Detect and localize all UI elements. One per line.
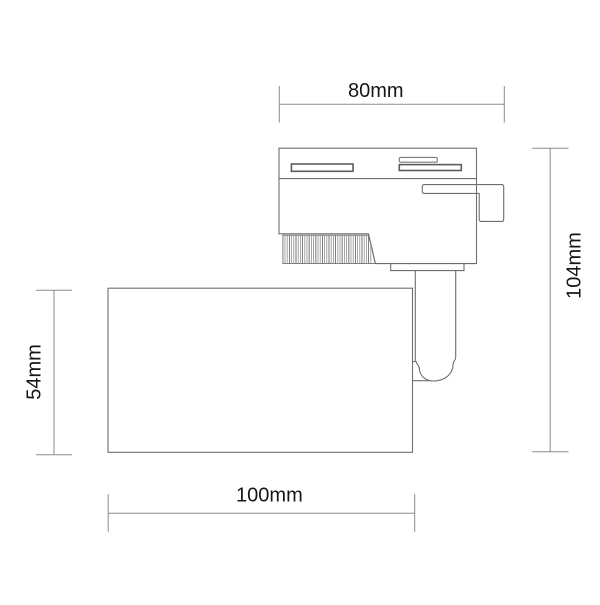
svg-text:54mm: 54mm (24, 344, 46, 400)
svg-text:104mm: 104mm (564, 232, 586, 299)
svg-text:80mm: 80mm (348, 80, 404, 102)
svg-text:100mm: 100mm (236, 485, 303, 507)
